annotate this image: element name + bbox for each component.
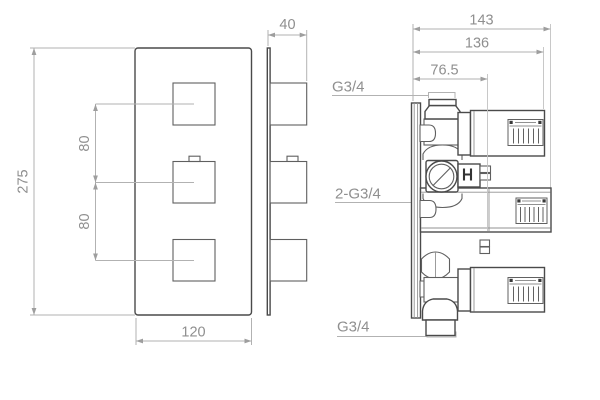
dim-143: 143 (413, 13, 551, 32)
valve-cartridge-port (426, 161, 491, 193)
dim-120: 120 (136, 318, 252, 345)
svg-text:136: 136 (465, 36, 489, 52)
dim-136: 136 (413, 36, 544, 55)
plate-stub-middle (420, 201, 436, 218)
valve-body-view (412, 74, 552, 336)
cartridge-tab-lower (480, 174, 491, 181)
valve-mounting-plate (412, 103, 421, 318)
drawing-canvas: 275 80 80 120 (0, 0, 600, 400)
front-view (135, 48, 252, 315)
side-knob-top (270, 83, 307, 125)
technical-drawing-shower-valve: 275 80 80 120 (0, 0, 600, 400)
label-top-port: G3/4 (332, 79, 365, 96)
label-inlet-ports: 2-G3/4 (335, 186, 381, 203)
label-bottom-port: G3/4 (337, 319, 370, 336)
dim-275: 275 (16, 48, 136, 315)
svg-text:80: 80 (77, 135, 93, 151)
dim-76-5: 76.5 (413, 63, 488, 82)
svg-text:76.5: 76.5 (430, 63, 458, 79)
valve-upper-shoulder (423, 145, 462, 160)
lower-tab-2 (480, 247, 490, 254)
bottom-port-shoulder (423, 299, 458, 320)
side-knob-middle-tab (287, 156, 298, 161)
svg-text:275: 275 (16, 169, 32, 193)
front-plate (135, 48, 252, 315)
cartridge-tab-upper (480, 166, 491, 173)
lower-tab-1 (480, 240, 490, 247)
dim-40: 40 (268, 17, 307, 81)
valve-bottom-handle (458, 268, 545, 313)
side-view (267, 48, 306, 315)
plate-stub-top (420, 125, 436, 142)
svg-text:120: 120 (181, 325, 205, 341)
side-knob-bottom (270, 240, 307, 282)
front-knob-middle-tab (189, 156, 200, 161)
side-knob-middle (270, 162, 307, 204)
bottom-port-cap (426, 320, 455, 336)
svg-text:40: 40 (279, 17, 295, 33)
hex-fitting (422, 252, 450, 279)
valve-top-handle (458, 111, 545, 157)
svg-text:80: 80 (77, 213, 93, 229)
svg-text:143: 143 (469, 13, 493, 29)
valve-middle-handle (421, 188, 552, 232)
